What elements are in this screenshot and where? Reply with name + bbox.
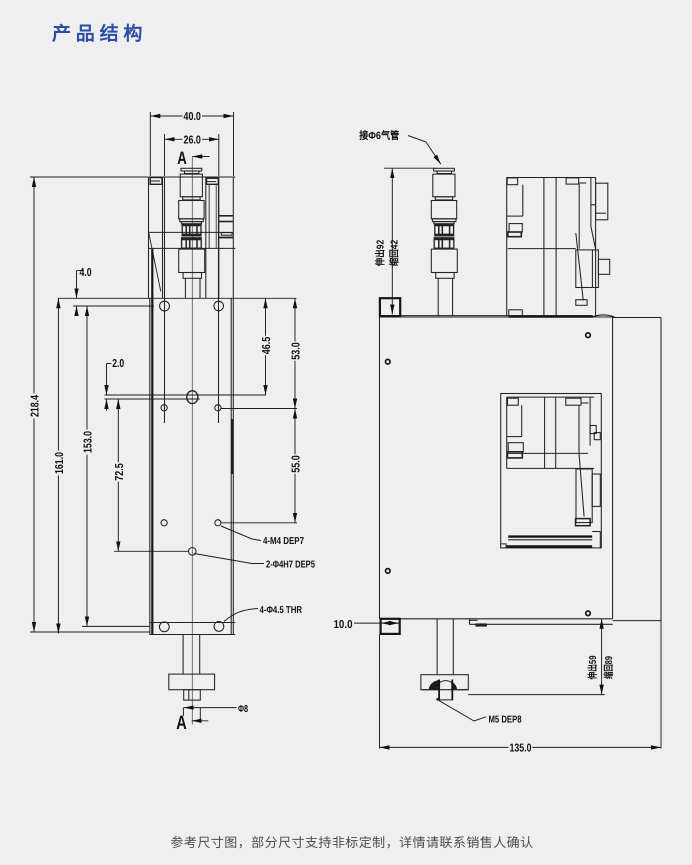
svg-text:M5 DEP8: M5 DEP8 — [489, 714, 522, 725]
svg-text:10.0: 10.0 — [334, 619, 353, 631]
svg-text:A: A — [176, 712, 187, 734]
svg-text:55.0: 55.0 — [291, 455, 303, 472]
svg-text:伸出92: 伸出92 — [375, 239, 387, 267]
svg-text:伸出59: 伸出59 — [587, 655, 599, 680]
svg-text:缩回42: 缩回42 — [388, 239, 400, 266]
svg-text:40.0: 40.0 — [184, 111, 201, 123]
svg-text:A: A — [177, 148, 187, 168]
svg-text:2.0: 2.0 — [112, 358, 124, 370]
svg-text:接Φ6气管: 接Φ6气管 — [359, 129, 399, 142]
svg-text:2-Φ4H7 DEP5: 2-Φ4H7 DEP5 — [266, 559, 315, 570]
svg-text:缩回89: 缩回89 — [603, 656, 615, 679]
svg-text:产品结构: 产品结构 — [52, 23, 147, 45]
svg-text:4-Φ4.5 THR: 4-Φ4.5 THR — [260, 605, 303, 616]
svg-text:135.0: 135.0 — [510, 743, 532, 755]
svg-text:26.0: 26.0 — [184, 134, 201, 146]
svg-text:参考尺寸图，部分尺寸支持非标定制，详情请联系销售人确认: 参考尺寸图，部分尺寸支持非标定制，详情请联系销售人确认 — [170, 835, 533, 850]
svg-text:4.0: 4.0 — [80, 267, 92, 279]
svg-text:153.0: 153.0 — [83, 431, 95, 453]
svg-text:46.5: 46.5 — [261, 336, 273, 354]
svg-text:53.0: 53.0 — [291, 342, 303, 359]
svg-text:Φ8: Φ8 — [238, 704, 248, 715]
svg-text:4-M4 DEP7: 4-M4 DEP7 — [263, 536, 304, 547]
svg-text:72.5: 72.5 — [114, 463, 126, 481]
svg-text:218.4: 218.4 — [30, 395, 42, 417]
svg-text:161.0: 161.0 — [54, 452, 66, 474]
